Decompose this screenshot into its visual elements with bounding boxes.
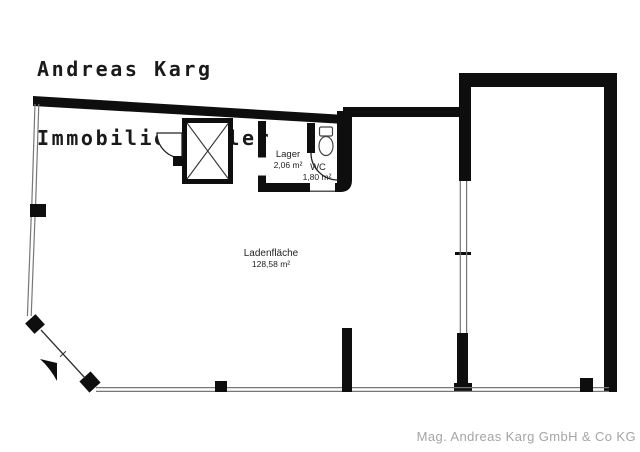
door-swing-symbol: [40, 359, 57, 381]
storage-room-label: Lager: [276, 149, 300, 160]
company-watermark: Mag. Andreas Karg GmbH & Co KG: [417, 429, 636, 444]
shaft-door-swing: [157, 133, 182, 158]
left-window-upper-inner: [36, 104, 39, 205]
wc-room-area: 1,80 m²: [303, 172, 332, 182]
top-step-wall: [343, 107, 461, 117]
storage-wc-divider-wall: [307, 123, 315, 153]
bottom-pillar-small-right: [580, 378, 593, 392]
bottom-pillar-tall: [342, 328, 352, 392]
right-room-top-wall: [459, 73, 617, 87]
left-window-lower-outer: [27, 217, 31, 316]
sales-floor-area: 128,58 m²: [252, 259, 290, 269]
right-room-left-wall-lower: [457, 333, 468, 383]
bottom-pillar-small-left: [215, 381, 227, 392]
toilet-tank: [320, 127, 333, 136]
storage-room-area: 2,06 m²: [274, 160, 303, 170]
toilet-bowl: [319, 137, 333, 156]
storage-left-wall-lower: [258, 176, 266, 192]
right-window-tick: [455, 252, 471, 255]
wc-door-threshold: [310, 191, 335, 193]
storage-left-wall-upper: [258, 121, 266, 157]
right-room-right-wall: [604, 73, 617, 392]
toilet-icon: [319, 127, 333, 156]
right-room-left-wall-upper: [459, 73, 471, 181]
left-window-upper-outer: [32, 104, 35, 205]
left-wall-block: [30, 204, 46, 217]
sales-floor-label: Ladenfläche: [244, 248, 299, 259]
shaft-door-wall-stub: [173, 156, 182, 166]
floor-plan-page: Andreas Karg Immobilienmakler: [0, 0, 640, 452]
left-window-lower-inner: [31, 217, 35, 316]
floor-plan-drawing: Lager 2,06 m² WC 1,80 m² Ladenfläche 128…: [0, 0, 640, 452]
